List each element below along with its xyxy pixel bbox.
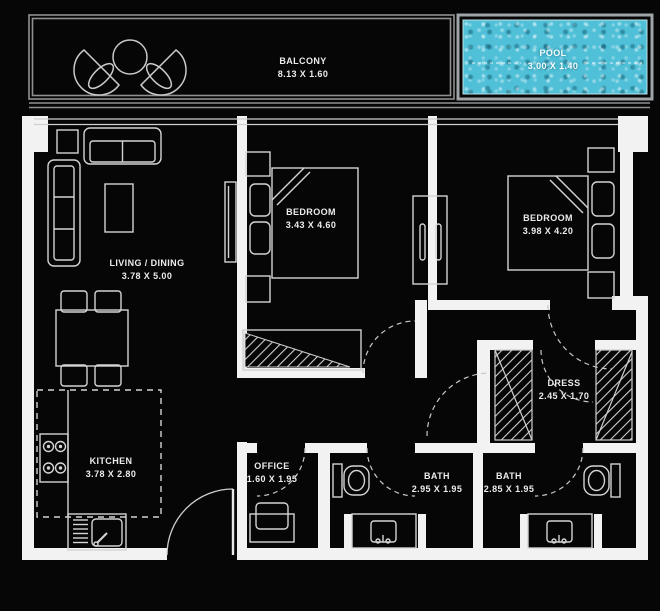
room-name: OFFICE: [224, 460, 320, 473]
window-wall: [34, 119, 618, 125]
room-name: BALCONY: [233, 55, 373, 68]
room-dims: 8.13 X 1.60: [233, 68, 373, 81]
nightstand-icon: [588, 148, 614, 172]
room-label-kitchen: KITCHEN 3.78 X 2.80: [51, 455, 171, 481]
room-label-pool: POOL 3.00 X 1.40: [493, 47, 613, 73]
chair-icon: [61, 365, 87, 386]
room-dims: 3.43 X 4.60: [251, 219, 371, 232]
wardrobe-icon: [413, 196, 447, 284]
room-label-living: LIVING / DINING 3.78 X 5.00: [77, 257, 217, 283]
door-swing-icon: [363, 321, 415, 373]
sofa-icon: [48, 160, 80, 266]
hatched-closet-icon: [243, 330, 361, 370]
room-name: LIVING / DINING: [77, 257, 217, 270]
room-label-balcony: BALCONY 8.13 X 1.60: [233, 55, 373, 81]
round-table-icon: [113, 40, 147, 74]
room-name: BATH: [459, 470, 559, 483]
room-name: DRESS: [504, 377, 624, 390]
room-name: BEDROOM: [251, 206, 371, 219]
chair-icon: [256, 503, 288, 529]
room-dims: 3.78 X 5.00: [77, 270, 217, 283]
room-name: KITCHEN: [51, 455, 171, 468]
room-label-bedroom1: BEDROOM 3.43 X 4.60: [251, 206, 371, 232]
chair-icon: [95, 291, 121, 312]
lounge-chair-icon: [141, 50, 186, 95]
washbasin-icon: [352, 514, 416, 548]
lounge-chair-icon: [74, 50, 119, 95]
room-dims: 3.78 X 2.80: [51, 468, 171, 481]
room-name: BEDROOM: [488, 212, 608, 225]
room-label-bedroom2: BEDROOM 3.98 X 4.20: [488, 212, 608, 238]
entrance-door-icon: [167, 489, 233, 555]
room-dims: 2.45 X 1.70: [504, 390, 624, 403]
chair-icon: [95, 365, 121, 386]
toilet-icon: [584, 464, 620, 497]
room-dims: 3.00 X 1.40: [493, 60, 613, 73]
nightstand-icon: [246, 152, 270, 176]
room-name: POOL: [493, 47, 613, 60]
linework-layer: [0, 0, 660, 611]
nightstand-icon: [588, 272, 614, 298]
chair-icon: [61, 291, 87, 312]
door-swing-icon: [427, 373, 490, 436]
nightstand-icon: [246, 276, 270, 302]
bedroom1-furniture: [243, 152, 447, 370]
floor-plan: BALCONY 8.13 X 1.60 POOL 3.00 X 1.40 LIV…: [0, 0, 660, 611]
toilet-icon: [333, 464, 369, 497]
office-furniture: [250, 503, 294, 542]
balcony-furniture: [74, 40, 186, 95]
sofa-icon: [84, 128, 161, 164]
side-table-icon: [57, 130, 78, 153]
room-dims: 3.98 X 4.20: [488, 225, 608, 238]
coffee-table-icon: [105, 184, 133, 232]
pillow-icon: [592, 182, 614, 216]
room-label-office: OFFICE 1.60 X 1.95: [224, 460, 320, 486]
room-dims: 2.85 X 1.95: [459, 483, 559, 496]
tv-icon: [225, 182, 236, 262]
washbasin-icon: [528, 514, 592, 548]
room-dims: 1.60 X 1.95: [224, 473, 320, 486]
kitchen-sink-icon: [68, 514, 126, 550]
room-label-dress: DRESS 2.45 X 1.70: [504, 377, 624, 403]
dining-table-icon: [56, 291, 128, 386]
room-label-bath2: BATH 2.85 X 1.95: [459, 470, 559, 496]
